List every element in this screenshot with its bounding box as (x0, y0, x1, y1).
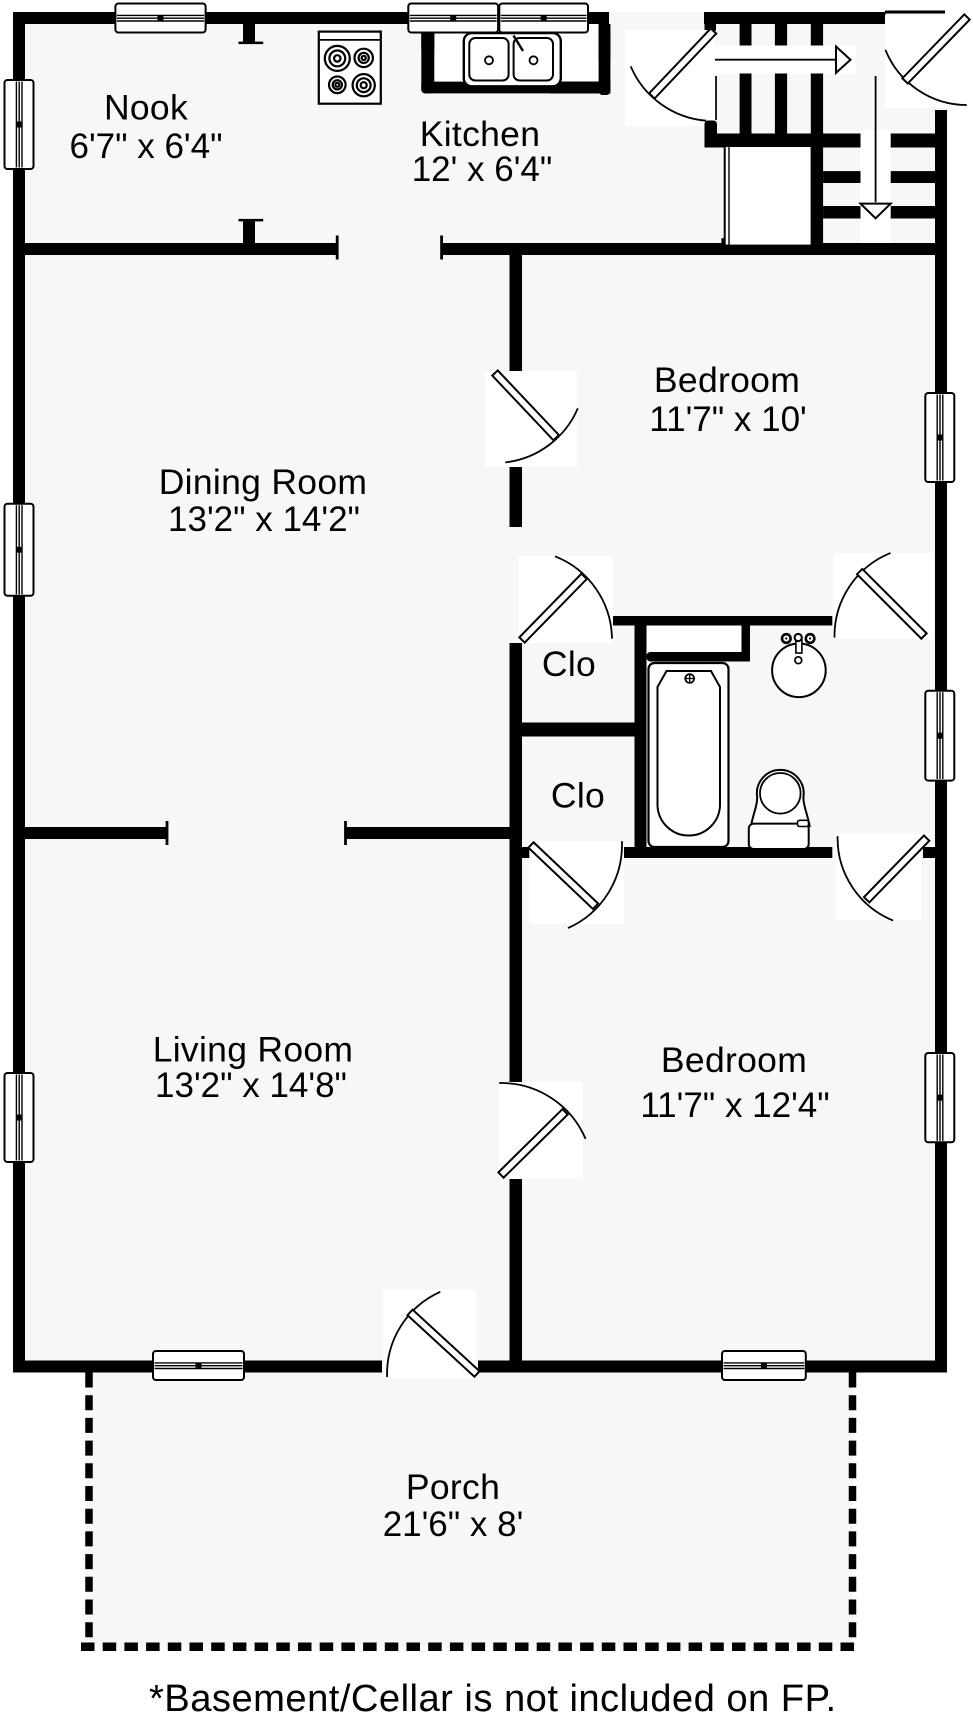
svg-text:12' x 6'4": 12' x 6'4" (412, 150, 553, 189)
svg-text:*Basement/Cellar is not includ: *Basement/Cellar is not included on FP. (149, 1677, 837, 1720)
svg-text:11'7" x 12'4": 11'7" x 12'4" (640, 1086, 829, 1125)
svg-text:Clo: Clo (542, 644, 596, 684)
svg-text:6'7" x 6'4": 6'7" x 6'4" (69, 127, 222, 166)
svg-text:21'6" x 8': 21'6" x 8' (383, 1505, 524, 1544)
svg-text:Bedroom: Bedroom (654, 360, 800, 400)
svg-text:Porch: Porch (406, 1467, 500, 1507)
svg-text:11'7" x 10': 11'7" x 10' (649, 400, 806, 439)
svg-text:Kitchen: Kitchen (420, 114, 541, 154)
svg-text:Nook: Nook (104, 88, 188, 128)
svg-text:Dining Room: Dining Room (159, 462, 368, 502)
svg-text:Living Room: Living Room (153, 1030, 354, 1070)
svg-text:Bedroom: Bedroom (661, 1040, 807, 1080)
svg-text:Clo: Clo (551, 776, 605, 816)
svg-text:13'2" x 14'2": 13'2" x 14'2" (168, 500, 360, 539)
svg-text:13'2" x 14'8": 13'2" x 14'8" (155, 1066, 347, 1105)
